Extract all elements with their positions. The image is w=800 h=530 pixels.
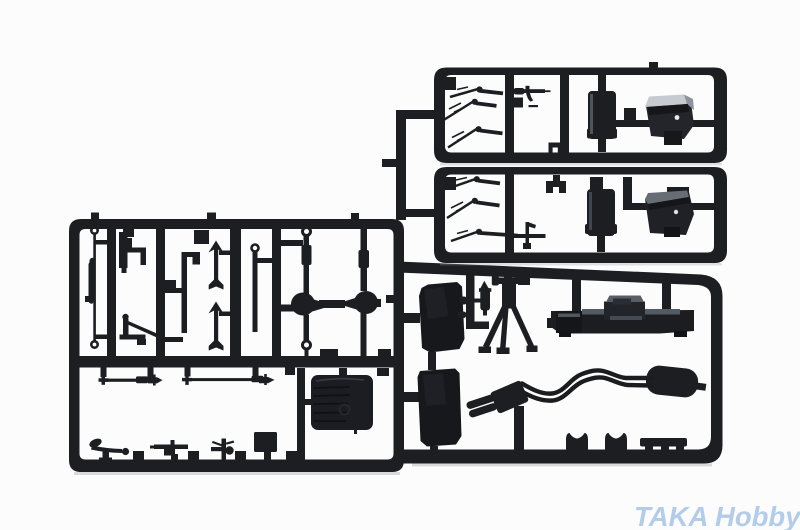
svg-text:TAKA Hobby: TAKA Hobby xyxy=(634,501,800,530)
